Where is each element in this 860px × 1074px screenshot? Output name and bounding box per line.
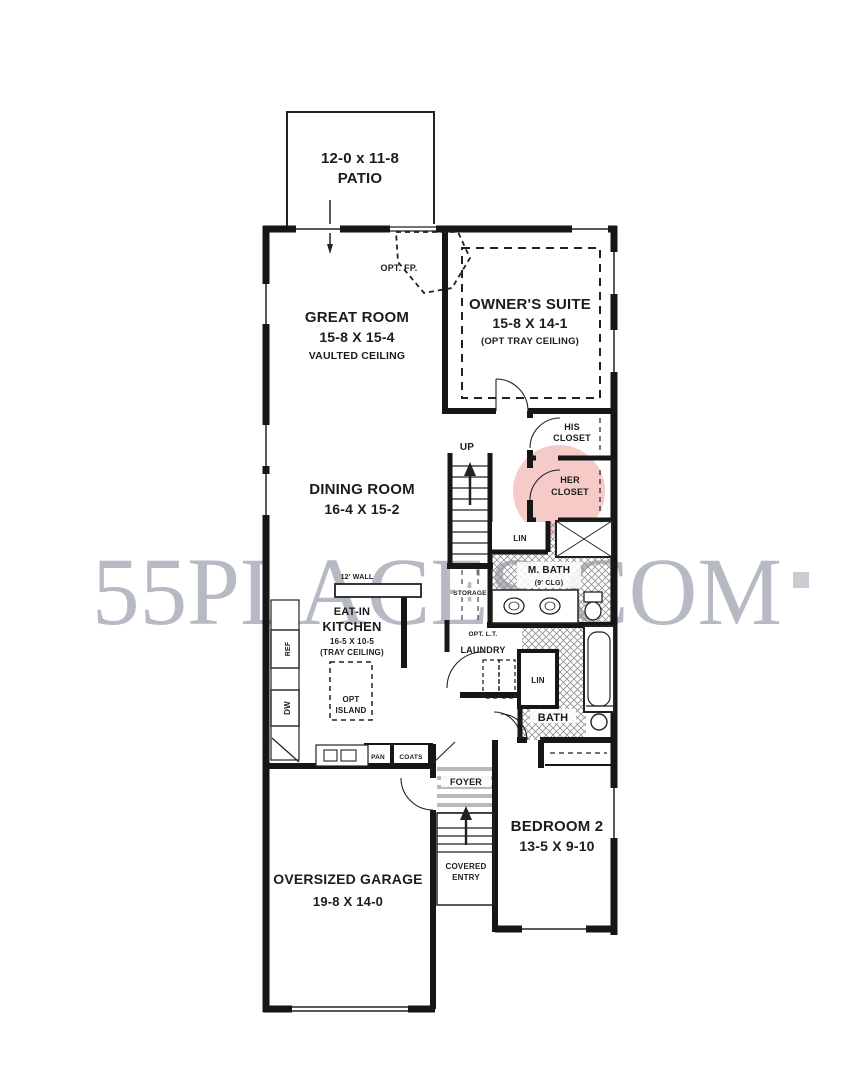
great-room-dims: 15-8 X 15-4 xyxy=(319,329,394,345)
bedroom2-dims: 13-5 X 9-10 xyxy=(519,838,594,854)
owners-suite-dims: 15-8 X 14-1 xyxy=(492,315,567,331)
storage-label: STORAGE xyxy=(453,590,487,597)
stairs-up-label: UP xyxy=(460,442,474,453)
coats-label: COATS xyxy=(399,754,423,761)
twelve-ft-wall-label: 12' WALL xyxy=(341,574,374,581)
bedroom2-label: BEDROOM 2 xyxy=(511,818,604,835)
kitchen-note: (TRAY CEILING) xyxy=(320,648,384,657)
kitchen-dims: 16-5 X 10-5 xyxy=(330,637,374,646)
trademark-icon xyxy=(793,572,809,588)
great-room-note: VAULTED CEILING xyxy=(309,350,406,362)
linen-2-label: LIN xyxy=(531,676,545,685)
toilet xyxy=(584,592,602,602)
dishwasher-label: DW xyxy=(283,701,292,715)
his-closet-label-1: HIS xyxy=(564,422,580,432)
opt-island-label-2: ISLAND xyxy=(336,706,367,715)
kitchen-label-1: EAT-IN xyxy=(334,606,370,618)
linen-1-label: LIN xyxy=(513,534,527,543)
foyer-label: FOYER xyxy=(450,777,482,787)
opt-fireplace-label: OPT. FP. xyxy=(381,263,418,273)
bath-label: BATH xyxy=(538,712,569,724)
her-closet-label-2: CLOSET xyxy=(551,487,589,497)
patio-dims: 12-0 x 11-8 xyxy=(321,150,399,167)
master-bath-note: (9' CLG) xyxy=(535,580,564,587)
watermark-text: 55PLACES.COM xyxy=(92,538,782,645)
her-closet-label-1: HER xyxy=(560,475,580,485)
bath-sink xyxy=(591,714,607,730)
owners-suite-note: (OPT TRAY CEILING) xyxy=(481,336,579,347)
kitchen-label-2: KITCHEN xyxy=(322,619,381,634)
floor-plan-page: 55PLACES.COM xyxy=(0,0,860,1074)
laundry-note: OPT. L.T. xyxy=(469,631,498,638)
great-room-label: GREAT ROOM xyxy=(305,309,409,326)
garage-dims: 19-8 X 14-0 xyxy=(313,894,383,909)
covered-entry-label-1: COVERED xyxy=(446,862,487,871)
refrigerator-label: REF xyxy=(285,641,292,656)
covered-entry-label-2: ENTRY xyxy=(452,873,480,882)
dining-room-label: DINING ROOM xyxy=(309,481,415,498)
garage-label: OVERSIZED GARAGE xyxy=(273,871,422,887)
dining-room-dims: 16-4 X 15-2 xyxy=(324,501,399,517)
half-wall xyxy=(335,584,421,597)
laundry-label: LAUNDRY xyxy=(460,645,505,655)
pantry-label: PAN xyxy=(371,754,385,761)
master-bath-label: M. BATH xyxy=(528,565,570,576)
patio-label: PATIO xyxy=(338,170,383,187)
opt-island-label-1: OPT xyxy=(342,695,359,704)
owners-suite-label: OWNER'S SUITE xyxy=(469,296,591,313)
his-closet-label-2: CLOSET xyxy=(553,433,591,443)
floor-plan: 55PLACES.COM xyxy=(0,0,860,1074)
